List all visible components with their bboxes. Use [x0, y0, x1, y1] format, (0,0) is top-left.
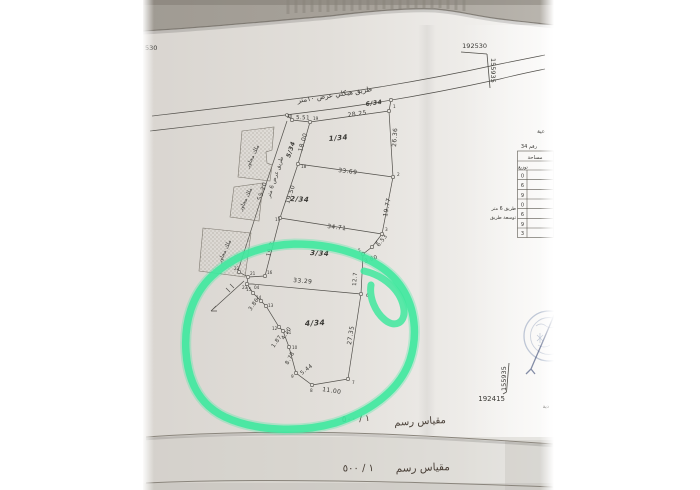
svg-text:9: 9	[291, 374, 294, 379]
table-side-label-2: توسعة طريق	[490, 215, 517, 221]
table-cell: 6	[521, 212, 524, 218]
table-ref-fragment: رقم 34	[521, 144, 538, 150]
svg-text:21: 21	[250, 271, 256, 276]
survey-map-photo: 192530 155935 530 طريق هيكلي عرض ١٠متر 6…	[0, 0, 700, 490]
table-cell: 0	[521, 203, 524, 209]
third-sheet	[143, 483, 554, 490]
svg-text:10: 10	[292, 345, 298, 350]
svg-text:13: 13	[268, 303, 274, 308]
parcel-label-4-34: 4/34	[305, 318, 326, 328]
scale-caption-sheet2: مقياس رسم ١ / ٥٠٠	[343, 461, 450, 475]
svg-text:04: 04	[254, 285, 260, 290]
seg-26-36: 26.36	[391, 128, 399, 148]
svg-text:12: 12	[272, 326, 278, 331]
svg-text:20: 20	[287, 114, 293, 119]
svg-text:8: 8	[310, 388, 313, 393]
seg-12-7: 12.7	[352, 272, 359, 286]
paper-crease	[418, 25, 436, 435]
survey-map-canvas: 192530 155935 530 طريق هيكلي عرض ١٠متر 6…	[0, 0, 700, 490]
svg-text:19: 19	[313, 116, 319, 121]
table-side-label-1: طريق 6 متر	[490, 206, 516, 212]
svg-text:1: 1	[393, 104, 396, 109]
scale-ratio-2: ١ / ٥٠٠	[343, 463, 374, 475]
svg-text:2: 2	[397, 172, 400, 177]
svg-text:16: 16	[267, 270, 273, 275]
table-cell: 3	[521, 231, 524, 237]
top-easting-label: 192530	[462, 42, 487, 50]
table-cell: 0	[521, 174, 524, 180]
table-header-dist: توزيع	[518, 166, 528, 171]
parcel-label-1-34: 1/34	[328, 133, 348, 143]
top-northing-label: 155935	[489, 58, 497, 83]
scale-text-2: مقياس رسم	[395, 461, 450, 475]
band-shadow	[143, 0, 554, 5]
seg-5-51: 5.51	[296, 115, 310, 121]
bottom-easting-label: 192415	[478, 395, 505, 403]
second-sheet	[143, 437, 554, 483]
table-cell: 6	[521, 183, 524, 189]
svg-text:22: 22	[234, 266, 240, 271]
svg-text:23: 23	[242, 285, 248, 290]
svg-text:3: 3	[385, 227, 388, 232]
table-cell: 9	[521, 193, 524, 199]
svg-text:17: 17	[275, 217, 281, 222]
table-cell: 9	[521, 222, 524, 228]
bottom-northing-label: 155935	[500, 366, 508, 391]
svg-text:18: 18	[301, 164, 307, 169]
paper-sheen	[460, 25, 554, 490]
svg-text:7: 7	[352, 380, 355, 385]
